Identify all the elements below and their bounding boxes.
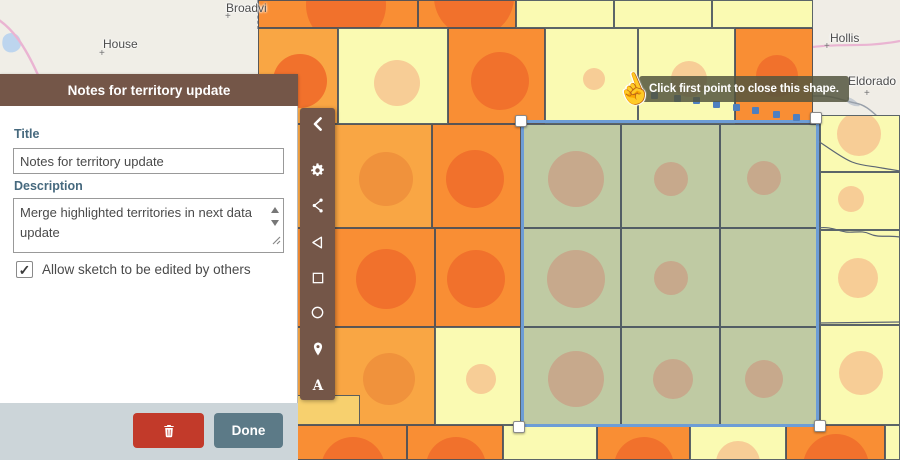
graduated-circle: [447, 250, 505, 308]
map-cell[interactable]: [820, 115, 900, 172]
draw-point-icon: [310, 341, 326, 357]
edit-permission-row: ✓ Allow sketch to be edited by others: [16, 261, 251, 278]
tool-collapse-panel[interactable]: [305, 111, 330, 136]
tool-draw-text[interactable]: A: [305, 373, 330, 398]
draw-rectangle-icon: [310, 270, 326, 286]
map-cell[interactable]: [432, 124, 521, 228]
resize-grip-icon[interactable]: [272, 232, 281, 250]
sketch-corner-handle[interactable]: [515, 115, 527, 127]
map-cell[interactable]: [690, 425, 786, 460]
map-cell[interactable]: [338, 28, 448, 124]
map-cell[interactable]: [885, 425, 900, 460]
map-cell[interactable]: [597, 425, 690, 460]
draw-text-icon: A: [309, 377, 327, 395]
graduated-circle: [716, 441, 760, 460]
tool-draw-circle[interactable]: [305, 300, 330, 325]
graduated-circle: [434, 0, 514, 28]
graduated-circle: [614, 437, 674, 460]
sketch-corner-handle[interactable]: [814, 420, 826, 432]
trash-icon: [161, 423, 177, 439]
scroll-down-icon[interactable]: [271, 220, 279, 226]
map-cell[interactable]: [258, 0, 418, 28]
map-canvas[interactable]: BroadviHouseHollisEldorado++++ Click fir…: [0, 0, 900, 460]
map-cell[interactable]: [418, 0, 516, 28]
edit-permission-checkbox[interactable]: ✓: [16, 261, 33, 278]
title-input[interactable]: [13, 148, 284, 174]
map-cell[interactable]: [820, 325, 900, 425]
graduated-circle: [466, 364, 496, 394]
graduated-circle: [839, 351, 883, 395]
scroll-up-icon[interactable]: [271, 207, 279, 213]
map-cell[interactable]: [407, 425, 503, 460]
tool-draw-polygon[interactable]: [305, 230, 330, 255]
sketch-vertex-dot: [733, 104, 740, 111]
graduated-circle: [321, 437, 385, 460]
svg-text:A: A: [311, 378, 323, 394]
checkmark-icon: ✓: [19, 263, 31, 277]
map-cell[interactable]: [516, 0, 614, 28]
tool-draw-polyline[interactable]: [305, 193, 330, 218]
sketch-vertex-dot: [713, 101, 720, 108]
sketch-selection[interactable]: [521, 120, 819, 427]
sketch-corner-handle[interactable]: [513, 421, 525, 433]
tool-draw-point[interactable]: [305, 336, 330, 361]
description-label: Description: [14, 179, 83, 193]
map-cell[interactable]: [435, 327, 521, 425]
draw-polygon-icon: [309, 234, 326, 251]
draw-polyline-icon: [309, 197, 326, 214]
graduated-circle: [583, 68, 605, 90]
checkbox-label: Allow sketch to be edited by others: [42, 262, 251, 277]
graduated-circle: [446, 150, 504, 208]
graduated-circle: [803, 434, 869, 460]
panel-footer: Done: [0, 403, 298, 460]
sketch-vertex-dot: [752, 107, 759, 114]
title-label: Title: [14, 127, 39, 141]
map-cell[interactable]: [614, 0, 712, 28]
map-cell[interactable]: [290, 425, 407, 460]
graduated-circle: [838, 186, 864, 212]
panel-header: Notes for territory update: [0, 74, 298, 106]
map-cell[interactable]: [712, 0, 813, 28]
panel-title: Notes for territory update: [68, 83, 231, 98]
sketch-toolbar: A: [300, 108, 335, 400]
graduated-circle: [837, 115, 881, 156]
graduated-circle: [363, 353, 415, 405]
description-textarea[interactable]: Merge highlighted territories in next da…: [13, 198, 284, 253]
tool-settings-gear[interactable]: [305, 158, 330, 183]
map-cell[interactable]: [448, 28, 545, 124]
sketch-corner-handle[interactable]: [810, 112, 822, 124]
sketch-tooltip: Click first point to close this shape.: [639, 76, 849, 102]
graduated-circle: [426, 437, 486, 460]
graduated-circle: [306, 0, 386, 28]
collapse-panel-icon: [309, 115, 327, 133]
map-cell[interactable]: [435, 228, 521, 327]
settings-gear-icon: [309, 162, 326, 179]
done-button[interactable]: Done: [214, 413, 283, 448]
graduated-circle: [374, 60, 420, 106]
sketch-vertex-dot: [793, 114, 800, 121]
tool-draw-rectangle[interactable]: [305, 265, 330, 290]
sketch-vertex-dot: [773, 111, 780, 118]
graduated-circle: [359, 152, 413, 206]
draw-circle-icon: [309, 304, 326, 321]
map-cell[interactable]: [786, 425, 885, 460]
notes-form: Title Description Merge highlighted terr…: [0, 106, 298, 403]
description-field: Merge highlighted territories in next da…: [13, 198, 284, 253]
map-cell[interactable]: [820, 230, 900, 325]
map-cell[interactable]: [820, 172, 900, 230]
graduated-circle: [356, 249, 416, 309]
delete-sketch-button[interactable]: [133, 413, 204, 448]
graduated-circle: [471, 52, 529, 110]
graduated-circle: [838, 258, 878, 298]
